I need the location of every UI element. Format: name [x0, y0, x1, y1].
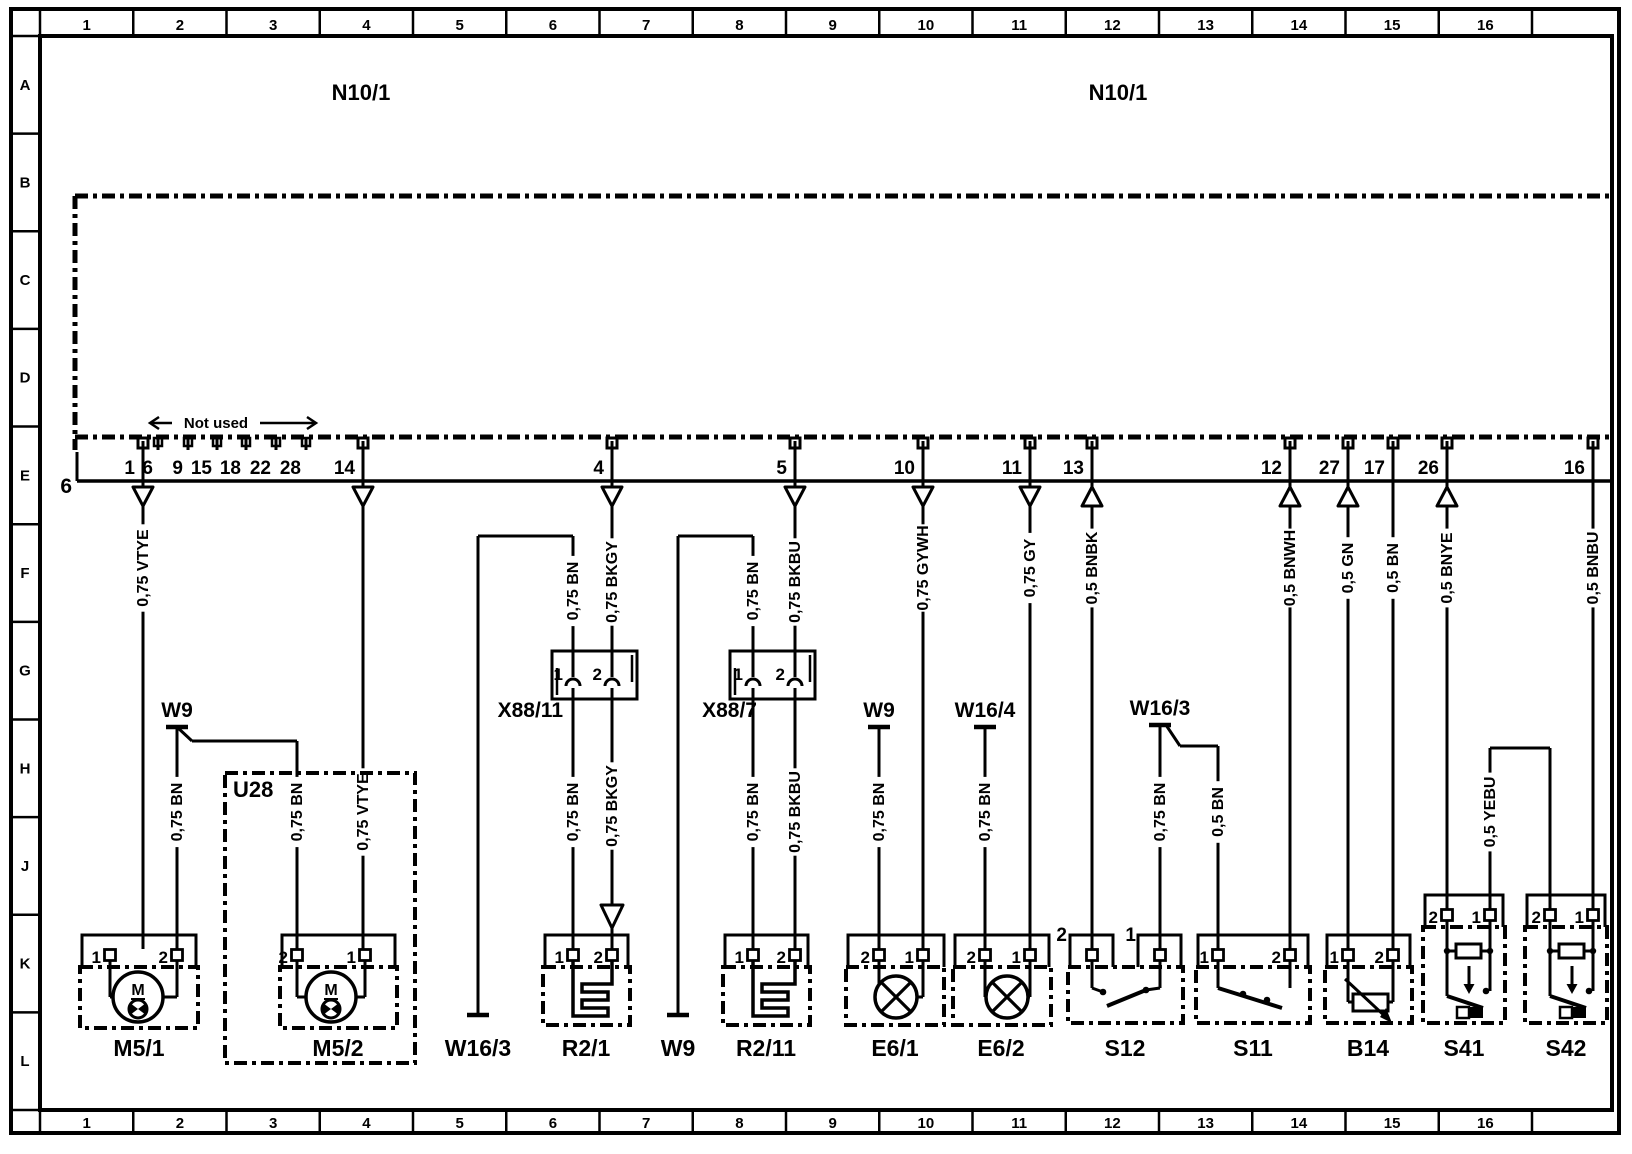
pin-number: 16: [1564, 458, 1585, 479]
component-boundary-box: [1068, 967, 1183, 1023]
component-pin-square: [1087, 950, 1098, 961]
pin-number: 1: [124, 458, 135, 479]
wire-0-5-BNBK: 0,5 BNBK: [1083, 508, 1101, 949]
component-label: E6/1: [871, 1035, 919, 1061]
wire-0-5-GN: 0,5 GN: [1339, 508, 1357, 949]
component-label: S42: [1546, 1035, 1587, 1061]
component-S41: 21S41: [1423, 895, 1505, 1061]
component-pin-number: 2: [967, 948, 976, 967]
illumination-box-icon: [1457, 1007, 1469, 1018]
component-pin-square: [790, 950, 801, 961]
component-pin-number: 1: [555, 948, 564, 967]
component-pin-square: [1485, 910, 1496, 921]
wire-direction-arrow-icon: [601, 905, 623, 928]
pin-number: 10: [894, 458, 915, 479]
not-used-pin-15: 15: [191, 438, 221, 479]
grid-column-number-bottom: 3: [269, 1115, 277, 1132]
component-pin-square: [874, 950, 885, 961]
wire-gauge-color-label: 0,75 VTYE: [135, 529, 152, 607]
component-pin-square: [1388, 950, 1399, 961]
wire-gauge-color-label: 0,75 BKBU: [787, 541, 804, 623]
switch-contact-dot: [1483, 988, 1490, 995]
grid-column-number-bottom: 15: [1384, 1115, 1401, 1132]
connector-pin-17: 17: [1364, 438, 1398, 481]
component-pin-square: [1545, 910, 1556, 921]
wire-0-5-BNWH: 0,5 BNWH: [1281, 508, 1299, 949]
wire-0-75-GY: 0,75 GY: [1021, 508, 1039, 949]
grid-column-number-top: 16: [1477, 17, 1494, 34]
component-pin-number: 1: [92, 948, 101, 967]
wire-segment: [1166, 725, 1180, 746]
component-M5-2: 21MM5/2: [279, 935, 397, 1061]
junction-dot: [1444, 948, 1450, 954]
grid-column-number-bottom: 5: [455, 1115, 463, 1132]
not-used-pin-28: 28: [280, 438, 310, 479]
component-pin-square: [1155, 950, 1166, 961]
grid-row-letter: H: [20, 760, 31, 777]
ground-label: W9: [161, 699, 193, 722]
pin-number: 1: [734, 665, 743, 684]
wire-0-5-BN: 0,5 BN: [1209, 746, 1227, 949]
illumination-box-icon: [1560, 1007, 1572, 1018]
component-R2-1: 12R2/1: [543, 935, 630, 1061]
connector-pin-27: 27: [1319, 438, 1358, 508]
direction-arrow-up-icon: [1338, 487, 1358, 506]
wire-gauge-color-label: 0,75 BN: [289, 783, 306, 842]
grid-column-number-top: 2: [176, 17, 184, 34]
component-pin-number: 1: [1125, 925, 1136, 946]
grid-column-number-bottom: 8: [735, 1115, 743, 1132]
grid-column-number-top: 4: [362, 17, 371, 34]
ground-point-W9: W9: [161, 699, 193, 727]
component-pin-number: 1: [1472, 908, 1481, 927]
control-unit-n10-1: N10/1N10/16: [60, 80, 1612, 498]
not-used-annotation: Not used: [150, 412, 316, 434]
component-pin-number: 2: [1532, 908, 1541, 927]
direction-arrow-up-icon: [1437, 487, 1457, 506]
grid-column-number-top: 1: [82, 17, 90, 34]
direction-arrow-down-icon: [1020, 487, 1040, 506]
grid-column-number-bottom: 9: [828, 1115, 836, 1132]
not-used-pin-18: 18: [220, 438, 250, 479]
component-pin-number: 2: [1375, 948, 1384, 967]
wire-gauge-color-label: 0,75 BN: [565, 783, 582, 842]
grid-column-number-bottom: 12: [1104, 1115, 1121, 1132]
wire-0-75-BN: 0,75 BN: [976, 727, 994, 949]
grid-column-number-bottom: 4: [362, 1115, 371, 1132]
ground-label: W16/3: [1130, 697, 1191, 720]
wire-gauge-color-label: 0,75 BN: [169, 783, 186, 842]
switch-contact-dot: [1100, 989, 1107, 996]
resistor-box-icon: [1456, 944, 1481, 958]
pin-number: 26: [1418, 458, 1439, 479]
component-pin-square: [1025, 950, 1036, 961]
grid-column-number-top: 8: [735, 17, 743, 34]
wire-0-75-BN: 0,75 BN: [1151, 725, 1169, 949]
grid-row-letter: D: [20, 370, 31, 387]
wire-0-75-BKBU: 0,75 BKBU: [786, 508, 804, 651]
grid-column-number-top: 14: [1291, 17, 1308, 34]
component-pin-square: [292, 950, 303, 961]
connector-pin-14: 14: [334, 438, 373, 508]
socket-arc-icon: [566, 679, 580, 686]
direction-arrow-down-icon: [785, 487, 805, 506]
component-pin-square: [607, 950, 618, 961]
component-pin-number: 1: [1575, 908, 1584, 927]
connector-pin-5: 5: [776, 438, 805, 508]
grid-row-letter: K: [20, 956, 31, 973]
component-pin-number: 2: [1056, 925, 1067, 946]
component-pin-number: 1: [735, 948, 744, 967]
connector-pin-16: 16: [1564, 438, 1598, 481]
socket-arc-icon: [788, 679, 802, 686]
component-pin-number: 1: [905, 948, 914, 967]
wire-gauge-color-label: 0,75 BN: [871, 783, 888, 842]
wire-gauge-color-label: 0,75 GYWH: [915, 525, 932, 610]
component-pin-square: [748, 950, 759, 961]
grid-column-number-bottom: 13: [1197, 1115, 1214, 1132]
grid-column-number-bottom: 11: [1011, 1115, 1027, 1132]
component-pin-square: [1213, 950, 1224, 961]
component-E6-2: 21E6/2: [953, 935, 1051, 1061]
wire-gauge-color-label: 0,75 BN: [565, 562, 582, 621]
ground-label: W16/4: [955, 699, 1016, 722]
component-pin-square: [1442, 910, 1453, 921]
component-pin-square: [1343, 950, 1354, 961]
grid-column-number-top: 3: [269, 17, 277, 34]
pin-number: 2: [593, 665, 602, 684]
grid-column-number-top: 5: [455, 17, 463, 34]
ground-point-W16-3: W16/3: [445, 1015, 511, 1061]
component-label: R2/11: [736, 1035, 796, 1061]
grid-column-number-top: 10: [918, 17, 935, 34]
wire-0-75-BN: 0,75 BN: [168, 727, 186, 949]
component-pin-number: 2: [1429, 908, 1438, 927]
component-pin-number: 1: [1330, 948, 1339, 967]
switch-blade-icon: [1218, 988, 1282, 1008]
wire-gauge-color-label: 0,75 BKGY: [604, 541, 621, 623]
grid-column-number-bottom: 14: [1291, 1115, 1308, 1132]
grid-column-number-top: 11: [1011, 17, 1027, 34]
illumination-box-filled-icon: [1573, 1007, 1586, 1018]
pin-number: 27: [1319, 458, 1340, 479]
wire-gauge-color-label: 0,75 BKBU: [787, 771, 804, 853]
switch-contact-dot: [1586, 988, 1593, 995]
wire-0-75-BKBU: 0,75 BKBU: [786, 699, 804, 949]
wire-gauge-color-label: 0,75 GY: [1022, 538, 1039, 597]
resistor-box-icon: [1559, 944, 1584, 958]
component-S11: 12S11: [1196, 935, 1310, 1061]
ground-point-W9: W9: [661, 1015, 696, 1061]
connector-label: X88/11: [498, 699, 564, 722]
component-M5-1: 12MM5/1: [80, 935, 198, 1061]
wire-gauge-color-label: 0,5 YEBU: [1482, 777, 1499, 848]
component-pin-number: 1: [347, 948, 356, 967]
wire-gauge-color-label: 0,5 GN: [1340, 543, 1357, 594]
grid-column-number-bottom: 1: [82, 1115, 90, 1132]
wire-0-75-VTYE: 0,75 VTYE: [134, 508, 152, 949]
junction-dot: [1487, 948, 1493, 954]
wire-0-5-YEBU: 0,5 YEBU: [1481, 748, 1499, 909]
connector-label: X88/7: [702, 699, 757, 722]
not-used-label: Not used: [184, 415, 248, 432]
wire-0-75-BN: 0,75 BN: [564, 536, 582, 651]
wire-0-5-BNBU: 0,5 BNBU: [1584, 481, 1602, 909]
grid-column-number-top: 9: [828, 17, 836, 34]
pin-number: 1: [554, 665, 563, 684]
component-pin-number: 1: [1012, 948, 1021, 967]
connector-pin-10: 10: [894, 438, 933, 508]
grid-column-number-bottom: 10: [918, 1115, 935, 1132]
component-S42: 21S42: [1525, 895, 1607, 1061]
grid-row-letter: C: [20, 272, 31, 289]
wire-gauge-color-label: 0,5 BN: [1385, 543, 1402, 593]
grid-column-number-top: 12: [1104, 17, 1121, 34]
component-pin-square: [105, 950, 116, 961]
wiring-diagram: 1122334455667788991010111112121313141415…: [0, 0, 1632, 1154]
component-label: S11: [1233, 1035, 1273, 1061]
enclosure-label: U28: [233, 777, 273, 802]
pin-number: 2: [776, 665, 785, 684]
component-R2-11: 12R2/11: [723, 935, 810, 1061]
grid-column-number-top: 6: [549, 17, 557, 34]
wire-gauge-color-label: 0,75 BN: [977, 783, 994, 842]
wire-0-5-BNYE: 0,5 BNYE: [1438, 508, 1456, 909]
component-pin-number: 2: [777, 948, 786, 967]
grid-column-number-bottom: 2: [176, 1115, 184, 1132]
direction-arrow-down-icon: [913, 487, 933, 506]
wire-gauge-color-label: 0,5 BNYE: [1439, 532, 1456, 603]
grid-row-letter: A: [20, 77, 31, 94]
wire-0-75-BN: 0,75 BN: [870, 727, 888, 949]
grid-column-number-top: 7: [642, 17, 650, 34]
grid-row-letter: G: [19, 663, 31, 680]
not-used-pin-6: 6: [142, 438, 162, 479]
wire-0-75-BN: 0,75 BN: [564, 699, 582, 949]
component-label: M5/1: [113, 1035, 164, 1061]
component-pin-number: 2: [1272, 948, 1281, 967]
grid-row-letter: F: [20, 565, 29, 582]
grid-row-letter: E: [20, 467, 30, 484]
ground-label: W9: [863, 699, 895, 722]
connector-pin-11: 11: [1002, 438, 1040, 508]
wire-gauge-color-label: 0,75 BN: [745, 562, 762, 621]
pin-number: 15: [191, 458, 213, 479]
grid-column-number-bottom: 7: [642, 1115, 650, 1132]
component-label: S12: [1105, 1035, 1146, 1061]
wire-gauge-color-label: 0,75 VTYE: [355, 773, 372, 851]
grid-row-letter: L: [20, 1053, 29, 1070]
pin-number: 22: [250, 458, 271, 479]
component-label: E6/2: [977, 1035, 1024, 1061]
pin-number: 9: [172, 458, 183, 479]
component-pin-square: [1588, 910, 1599, 921]
component-label: M5/2: [312, 1035, 363, 1061]
component-pin-square: [360, 950, 371, 961]
component-pin-number: 2: [279, 948, 288, 967]
wire-0-75-BN: 0,75 BN: [744, 699, 762, 949]
wire-gauge-color-label: 0,75 BN: [1152, 783, 1169, 842]
component-pin-number: 2: [159, 948, 168, 967]
grid-row-letter: J: [21, 858, 29, 875]
control-unit-label-right: N10/1: [1089, 80, 1148, 105]
motor-m: M: [131, 982, 144, 999]
wire-0-75-BN: 0,75 BN: [744, 536, 762, 651]
direction-arrow-down-icon: [602, 487, 622, 506]
wiring-diagram-page: 1122334455667788991010111112121313141415…: [0, 0, 1632, 1154]
grid-column-number-bottom: 6: [549, 1115, 557, 1132]
wire-gauge-color-label: 0,5 BNBK: [1084, 531, 1101, 604]
component-label: R2/1: [562, 1035, 611, 1061]
control-unit-label-left: N10/1: [332, 80, 391, 105]
inline-connector-X88-11: 12X88/11: [498, 651, 637, 722]
pin-number: 11: [1002, 458, 1023, 479]
pin-number: 14: [334, 458, 356, 479]
actuator-arrowhead-icon: [1464, 984, 1475, 994]
component-pin-square: [1285, 950, 1296, 961]
inline-connector-X88-7: 12X88/7: [702, 651, 815, 722]
motor-m: M: [324, 982, 337, 999]
not-used-pin-22: 22: [250, 438, 280, 479]
socket-arc-icon: [746, 679, 760, 686]
component-pin-square: [172, 950, 183, 961]
ground-point-W16-4: W16/4: [955, 699, 1016, 727]
direction-arrow-down-icon: [353, 487, 373, 506]
component-pin-number: 2: [861, 948, 870, 967]
grid-row-letter: B: [20, 174, 31, 191]
wire-0-5-BN: 0,5 BN: [1384, 481, 1402, 949]
wire-0-75-BKGY: 0,75 BKGY: [603, 508, 621, 651]
connector-pin-26: 26: [1418, 438, 1457, 508]
actuator-arrowhead-icon: [1567, 984, 1578, 994]
component-pin-square: [568, 950, 579, 961]
wire-0-75-VTYE: 0,75 VTYE: [354, 508, 372, 949]
switch-blade-icon: [1107, 990, 1146, 1006]
socket-arc-icon: [605, 679, 619, 686]
pin-number: 17: [1364, 458, 1385, 479]
component-pin-number: 1: [1200, 948, 1209, 967]
direction-arrow-down-icon: [133, 487, 153, 506]
ground-label: W16/3: [445, 1035, 511, 1061]
grid-column-number-top: 13: [1197, 17, 1214, 34]
pin-number: 4: [593, 458, 604, 479]
component-B14: 12B14: [1325, 935, 1412, 1061]
component-label: S41: [1444, 1035, 1485, 1061]
wire-gauge-color-label: 0,75 BKGY: [604, 765, 621, 847]
ground-point-W9: W9: [863, 699, 895, 727]
component-connector-housing: [282, 935, 395, 967]
bus-number-label: 6: [60, 475, 72, 498]
direction-arrow-up-icon: [1280, 487, 1300, 506]
component-S12: 21S12: [1056, 925, 1183, 1061]
pin-number: 5: [776, 458, 787, 479]
pin-number: 12: [1261, 458, 1282, 479]
wire-gauge-color-label: 0,5 BNBU: [1585, 532, 1602, 605]
component-pin-square: [980, 950, 991, 961]
ground-label: W9: [661, 1035, 696, 1061]
connector-pin-12: 12: [1261, 438, 1300, 508]
pin-number: 18: [220, 458, 241, 479]
component-E6-1: 21E6/1: [846, 935, 944, 1061]
pin-number: 28: [280, 458, 301, 479]
connector-pin-4: 4: [593, 438, 622, 508]
not-used-pin-9: 9: [172, 438, 192, 479]
component-label: B14: [1347, 1035, 1389, 1061]
direction-arrow-up-icon: [1082, 487, 1102, 506]
ground-point-W16-3: W16/3: [1130, 697, 1191, 725]
junction-dot: [1590, 948, 1596, 954]
wire-gauge-color-label: 0,5 BN: [1210, 787, 1227, 837]
component-pin-number: 2: [594, 948, 603, 967]
wire-0-75-GYWH: 0,75 GYWH: [914, 508, 932, 949]
grid-column-number-bottom: 16: [1477, 1115, 1494, 1132]
wire-gauge-color-label: 0,75 BN: [745, 783, 762, 842]
component-boundary-box: [1196, 967, 1310, 1023]
illumination-box-filled-icon: [1470, 1007, 1483, 1018]
pin-number: 13: [1063, 458, 1084, 479]
rheostat-arrow: [1345, 979, 1388, 1019]
connector-pin-13: 13: [1063, 438, 1102, 508]
grid-column-number-top: 15: [1384, 17, 1401, 34]
wire-gauge-color-label: 0,5 BNWH: [1282, 530, 1299, 606]
component-pin-square: [918, 950, 929, 961]
junction-dot: [1547, 948, 1553, 954]
pin-number: 6: [142, 458, 153, 479]
